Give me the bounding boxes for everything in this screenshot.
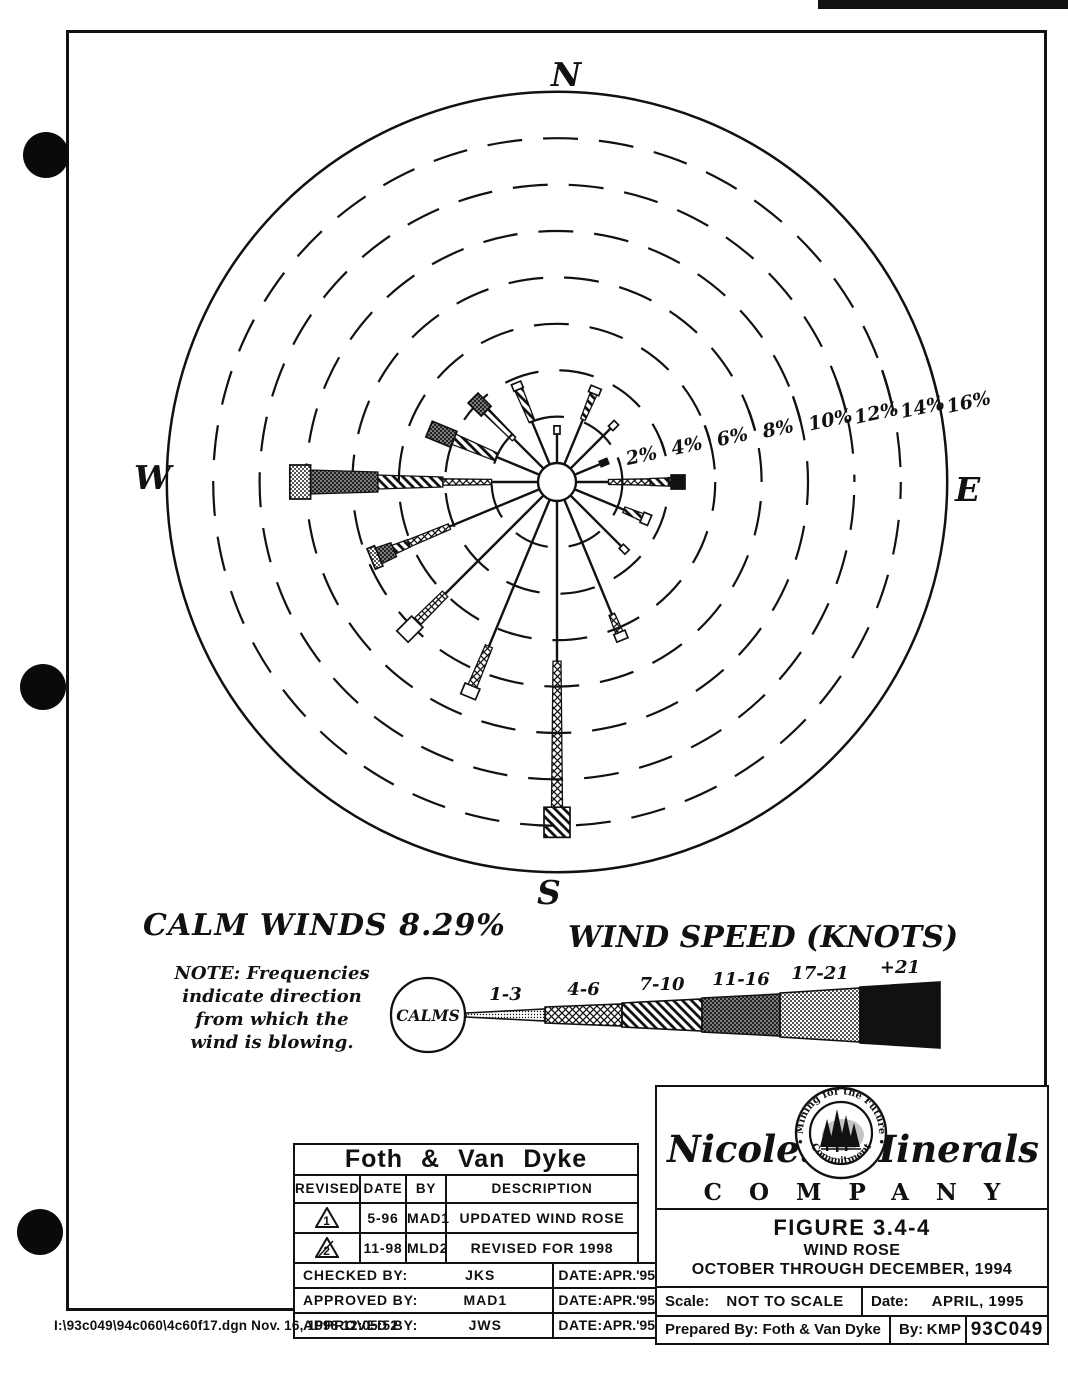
company-word: COMPANY [657, 1179, 1047, 1206]
revision-delta-icon: 1 [295, 1204, 361, 1232]
signoff-date: APR.'95 [603, 1264, 655, 1287]
col-by: BY [407, 1176, 447, 1202]
wind-rose-chart: 2%4%6%8%10%12%14%16% [120, 50, 1000, 930]
svg-text:1: 1 [323, 1214, 330, 1228]
signoff-date-label: DATE: [554, 1264, 602, 1287]
svg-text:4-6: 4-6 [567, 979, 600, 1000]
signoff-date: APR.'95 [603, 1314, 655, 1337]
figure-subtitle: OCTOBER THROUGH DECEMBER, 1994 [657, 1260, 1047, 1279]
calm-winds-caption: CALM WINDS 8.29% [143, 908, 506, 943]
svg-text:2: 2 [323, 1244, 330, 1258]
revision-row: 2 11-98 MLD2 REVISED FOR 1998 UPDATE [295, 1234, 637, 1264]
company-seal-icon: • Mining for the Future • Commitment [793, 1085, 889, 1181]
wind-speed-legend: CALMS1-34-67-1011-1617-21+21 [380, 950, 960, 1080]
revision-description: REVISED FOR 1998 UPDATE [447, 1234, 637, 1262]
note-line: indicate direction [158, 985, 386, 1008]
signoff-date-label: DATE: [554, 1289, 602, 1312]
file-path-footer: I:\93c049\94c060\4c60f17.dgn Nov. 16, 19… [54, 1318, 398, 1333]
svg-text:12%: 12% [852, 398, 900, 429]
note-block: NOTE: Frequencies indicate direction fro… [158, 962, 386, 1054]
hole-punch-icon [23, 132, 69, 178]
date-value: APRIL, 1995 [909, 1288, 1047, 1315]
svg-text:CALMS: CALMS [396, 1006, 460, 1025]
svg-text:7-10: 7-10 [639, 974, 685, 995]
signoff-row: CHECKED BY: JKS DATE: APR.'95 [295, 1264, 655, 1289]
svg-text:1-3: 1-3 [489, 984, 522, 1005]
by-label: By: [891, 1317, 923, 1343]
svg-text:4%: 4% [669, 432, 704, 460]
svg-text:16%: 16% [945, 387, 993, 418]
revision-by: MLD2 [407, 1234, 447, 1262]
prepared-by: Prepared By: Foth & Van Dyke [657, 1317, 891, 1343]
scale-label: Scale: [657, 1288, 709, 1315]
signoff-name: MAD1 [418, 1289, 552, 1312]
svg-text:+21: +21 [880, 957, 920, 978]
svg-text:10%: 10% [806, 405, 854, 436]
svg-text:8%: 8% [759, 415, 795, 443]
note-line: NOTE: Frequencies [158, 962, 386, 985]
by-value: KMP [923, 1317, 965, 1343]
svg-text:14%: 14% [898, 392, 946, 423]
hole-punch-icon [20, 664, 66, 710]
revision-date: 5-96 [361, 1204, 407, 1232]
revision-date: 11-98 [361, 1234, 407, 1262]
revision-table-header: REVISED DATE BY DESCRIPTION [295, 1176, 637, 1204]
svg-text:17-21: 17-21 [791, 963, 849, 984]
signoff-label: APPROVED BY: [295, 1289, 418, 1312]
col-description: DESCRIPTION [447, 1176, 637, 1202]
figure-number: FIGURE 3.4-4 [657, 1210, 1047, 1241]
scan-edge-bar [818, 0, 1068, 9]
svg-text:6%: 6% [715, 423, 750, 451]
figure-caption: FIGURE 3.4-4 WIND ROSE OCTOBER THROUGH D… [657, 1210, 1047, 1288]
firm-name: Foth & Van Dyke [295, 1145, 637, 1176]
note-line: from which the [158, 1008, 386, 1031]
document-number: 93C049 [967, 1317, 1047, 1343]
col-revised: REVISED [295, 1176, 361, 1202]
signoff-date: APR.'95 [603, 1289, 655, 1312]
hole-punch-icon [17, 1209, 63, 1255]
revision-row: 1 5-96 MAD1 UPDATED WIND ROSE [295, 1204, 637, 1234]
signoff-date-label: DATE: [554, 1314, 602, 1337]
scale-value: NOT TO SCALE [709, 1288, 861, 1315]
note-line: wind is blowing. [158, 1031, 386, 1054]
signoff-row: APPROVED BY: MAD1 DATE: APR.'95 [295, 1289, 655, 1314]
svg-text:2%: 2% [623, 442, 659, 470]
revision-by: MAD1 [407, 1204, 447, 1232]
prepared-row: Prepared By: Foth & Van Dyke By: KMP 93C… [657, 1317, 1047, 1343]
scale-date-row: Scale: NOT TO SCALE Date: APRIL, 1995 [657, 1288, 1047, 1317]
scanned-figure-page: N E S W 2%4%6%8%10%12%14%16% CALM WINDS … [0, 0, 1068, 1380]
signoff-name: JKS [408, 1264, 552, 1287]
date-label: Date: [863, 1288, 909, 1315]
revision-table: Foth & Van Dyke REVISED DATE BY DESCRIPT… [293, 1143, 639, 1276]
signoff-name: JWS [418, 1314, 552, 1337]
revision-delta-icon: 2 [295, 1234, 361, 1262]
svg-text:11-16: 11-16 [712, 969, 770, 990]
company-logo-row: Nicolet Minerals COMPANY • Mining for th… [657, 1087, 1047, 1210]
figure-subtitle: WIND ROSE [657, 1241, 1047, 1260]
company-title-block: Nicolet Minerals COMPANY • Mining for th… [655, 1085, 1049, 1345]
signoff-label: CHECKED BY: [295, 1264, 408, 1287]
revision-description: UPDATED WIND ROSE [447, 1204, 637, 1232]
col-date: DATE [361, 1176, 407, 1202]
